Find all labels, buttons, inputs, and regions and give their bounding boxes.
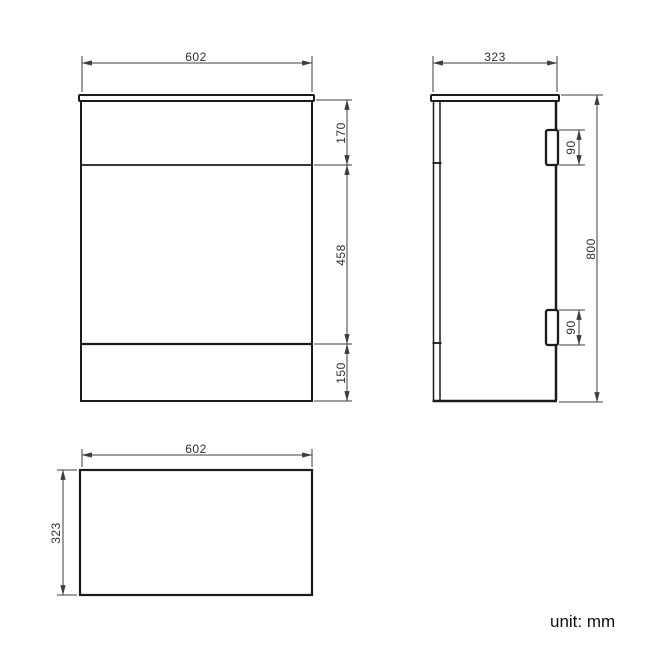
front-height-dimensions: 170 458 150: [314, 100, 352, 401]
unit-note: unit: mm: [550, 612, 615, 631]
front-width-dimension: 602: [82, 50, 312, 92]
side-depth-dimension: 323: [433, 50, 557, 92]
front-cabinet-body: [81, 101, 312, 401]
plan-width-label: 602: [185, 442, 207, 456]
plan-depth-dimension: 323: [49, 470, 77, 595]
side-view: 323 90 90 800: [431, 50, 603, 402]
side-countertop: [431, 95, 559, 101]
front-width-label: 602: [185, 50, 207, 64]
side-height-label: 800: [584, 238, 598, 260]
hinge-bottom-dimension: 90: [559, 310, 585, 345]
front-middle-section-label: 458: [334, 244, 348, 266]
technical-drawing: 602 170 458 150 323: [0, 0, 650, 650]
plan-outline: [80, 470, 312, 595]
side-depth-label: 323: [484, 50, 506, 64]
hinge-bottom-label: 90: [564, 320, 578, 334]
plan-view: 602 323: [49, 442, 312, 595]
front-view: 602 170 458 150: [79, 50, 352, 401]
plan-width-dimension: 602: [82, 442, 312, 467]
hinge-top: [546, 130, 558, 165]
plan-depth-label: 323: [49, 522, 63, 544]
hinge-bottom: [546, 310, 558, 345]
front-bottom-section-label: 150: [334, 362, 348, 384]
front-top-section-label: 170: [334, 122, 348, 144]
hinge-top-dimension: 90: [559, 130, 585, 165]
hinge-top-label: 90: [564, 140, 578, 154]
